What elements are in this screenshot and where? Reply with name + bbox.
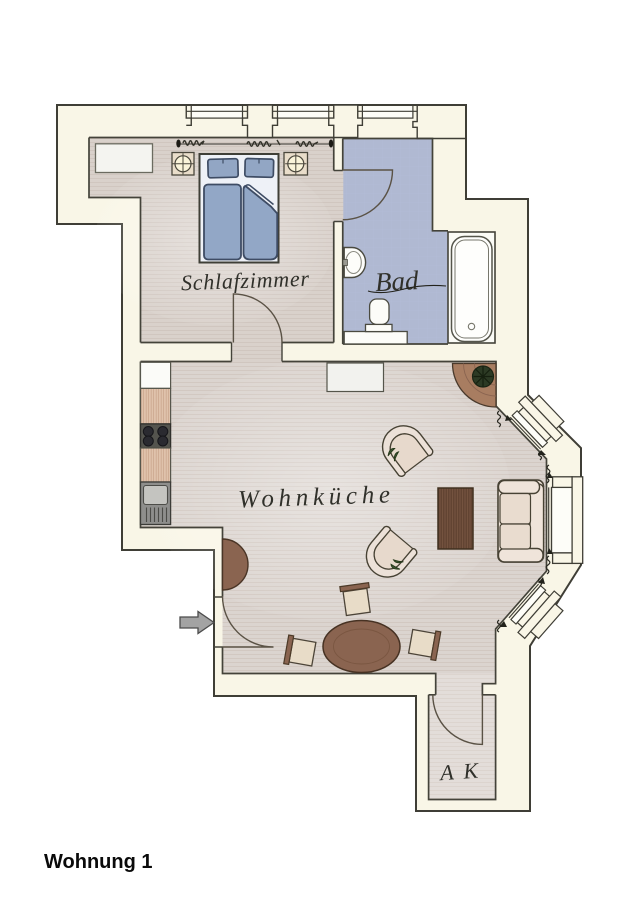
svg-text:Schlafzimmer: Schlafzimmer bbox=[181, 266, 310, 295]
svg-text:Wohnung 1: Wohnung 1 bbox=[44, 851, 153, 873]
